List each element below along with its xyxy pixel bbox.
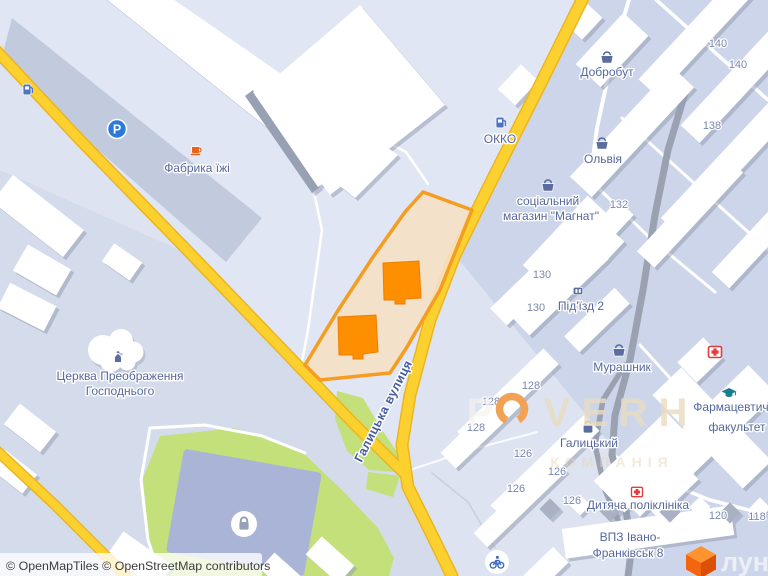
lun-logo[interactable]: лун xyxy=(686,546,768,576)
house-number: 118 xyxy=(748,511,766,523)
poi-label-fabryka: Фабрика їжі xyxy=(164,161,230,175)
hospital-cross-icon xyxy=(631,487,642,496)
poi-label-church-2: Господнього xyxy=(86,384,155,398)
lun-logo-text: лун xyxy=(721,547,768,576)
poi-label-church-1: Церква Преображення xyxy=(56,369,183,383)
poi-label-polyclinic: Дитяча поліклініка xyxy=(587,498,690,512)
house-number: 130 xyxy=(533,269,551,281)
fuel-icon xyxy=(23,85,32,95)
bicycle-icon xyxy=(485,550,509,574)
house-number: 130 xyxy=(527,302,545,314)
fuel-icon xyxy=(496,118,505,128)
map-svg[interactable]: P xyxy=(0,0,768,576)
poi-label-vpz-2: Франківськ 8 xyxy=(593,546,664,560)
poi-label-pharm-2: факультет xyxy=(708,420,766,434)
house-number: 126 xyxy=(507,483,525,495)
poi-label-dobrobut: Добробут xyxy=(580,65,634,79)
poi-label-mahnat-1: соціальний xyxy=(517,194,579,208)
attribution-bar[interactable]: © OpenMapTiles © OpenStreetMap contribut… xyxy=(0,553,270,576)
svg-text:P: P xyxy=(113,122,121,136)
watermark-letter-p: P xyxy=(467,391,494,435)
house-number: 140 xyxy=(729,59,747,71)
house-number: 126 xyxy=(563,495,581,507)
watermark-letter-r: R xyxy=(619,391,648,435)
map-canvas[interactable]: P xyxy=(0,0,768,576)
hospital-cross-icon xyxy=(709,347,722,358)
watermark-letter-e: E xyxy=(582,391,609,435)
poi-label-mahnat-2: магазин "Магнат" xyxy=(503,209,599,223)
poi-label-halytskyi: Галицький xyxy=(560,436,618,450)
poi-label-vpz-1: ВПЗ Івано- xyxy=(600,530,661,544)
house-number: 120 xyxy=(709,510,727,522)
poi-label-okko: ОККО xyxy=(484,132,517,146)
house-number: 138 xyxy=(703,120,721,132)
watermark-letter-v: V xyxy=(544,391,571,435)
watermark-subtitle: КОМПАНІЯ xyxy=(550,454,673,470)
attribution-links[interactable]: © OpenMapTiles © OpenStreetMap contribut… xyxy=(6,559,270,573)
house-number: 128 xyxy=(522,380,540,392)
plot-building-2[interactable] xyxy=(338,315,378,359)
poi-label-pharm-1: Фармацевтичний xyxy=(693,400,768,414)
house-number: 132 xyxy=(610,199,628,211)
plot-building-1[interactable] xyxy=(383,261,421,304)
cafe-cup-icon xyxy=(191,147,202,155)
house-number: 126 xyxy=(514,448,532,460)
entrance-icon xyxy=(574,288,583,295)
parking-icon: P xyxy=(108,120,127,139)
lock-icon xyxy=(231,511,257,537)
watermark-letter-h: H xyxy=(659,391,688,435)
poi-label-pidyizd: Під'їзд 2 xyxy=(558,299,604,313)
poi-label-murashnyk: Мурашник xyxy=(593,360,651,374)
house-number: 140 xyxy=(709,38,727,50)
poi-label-olviia: Ольвія xyxy=(584,152,622,166)
